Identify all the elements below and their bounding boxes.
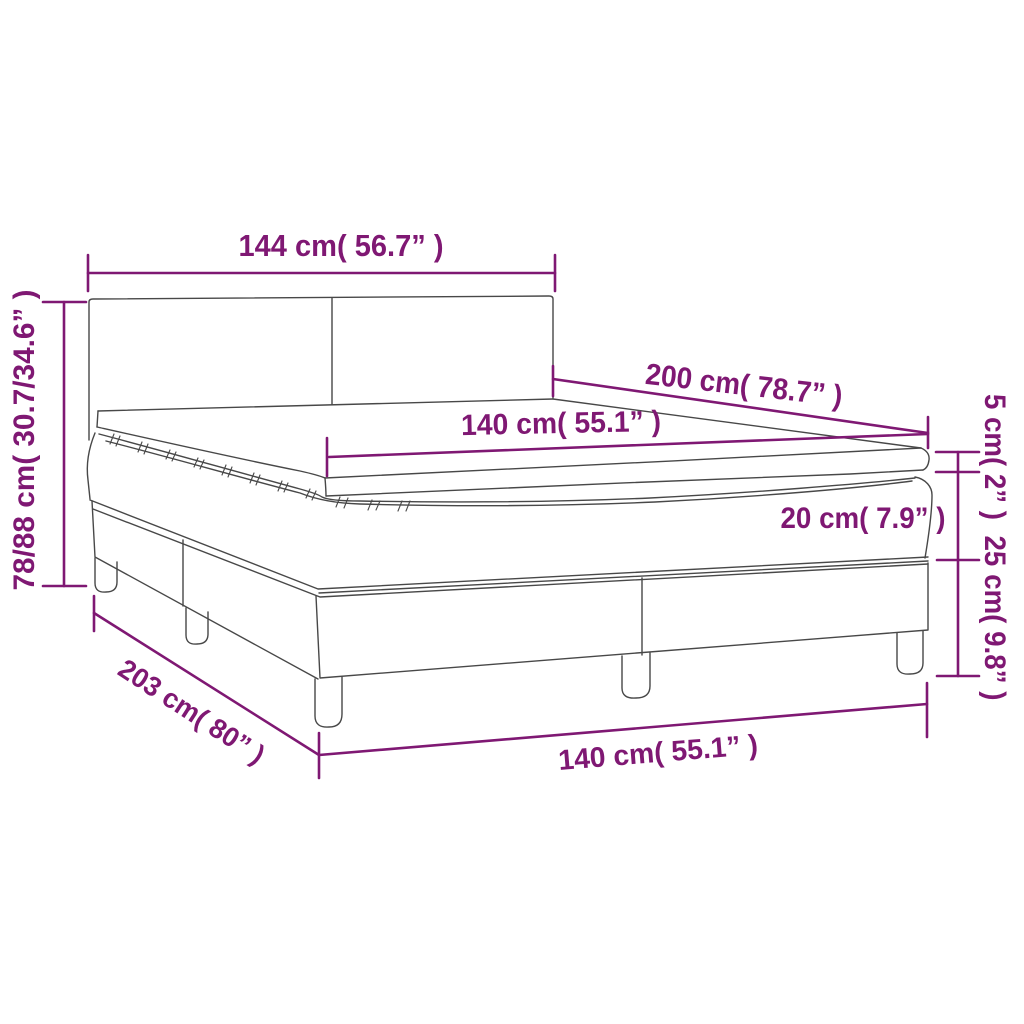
svg-text:78/88 cm( 30.7/34.6” ): 78/88 cm( 30.7/34.6” ) [8, 290, 41, 591]
svg-text:200 cm( 78.7” ): 200 cm( 78.7” ) [644, 358, 844, 413]
svg-text:203 cm( 80” ): 203 cm( 80” ) [113, 653, 271, 770]
svg-text:140 cm( 55.1” ): 140 cm( 55.1” ) [557, 729, 759, 777]
svg-text:25 cm( 9.8” ): 25 cm( 9.8” ) [978, 536, 1011, 701]
svg-text:144 cm( 56.7” ): 144 cm( 56.7” ) [239, 229, 444, 263]
svg-text:20 cm( 7.9” ): 20 cm( 7.9” ) [781, 502, 946, 535]
svg-text:140 cm( 55.1” ): 140 cm( 55.1” ) [461, 405, 662, 442]
svg-text:5 cm( 2” ): 5 cm( 2” ) [978, 394, 1011, 520]
